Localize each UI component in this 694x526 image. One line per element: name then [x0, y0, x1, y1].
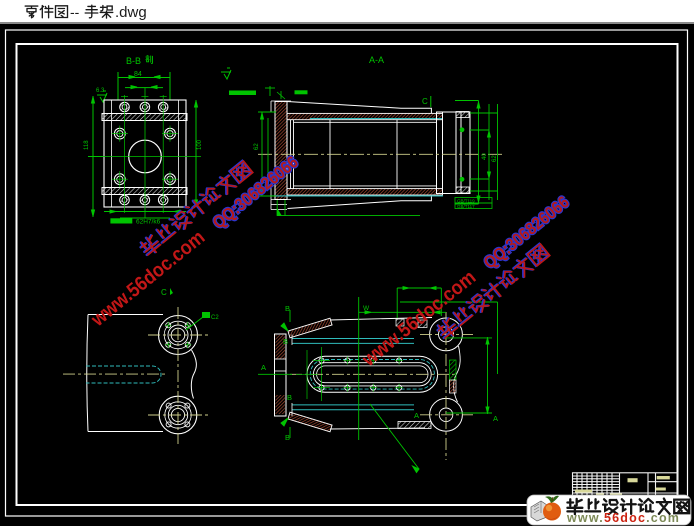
svg-text:B: B: [283, 337, 288, 346]
svg-text:62H7/k6: 62H7/k6: [136, 219, 161, 226]
svg-text:B: B: [285, 433, 290, 442]
svg-text:C: C: [422, 97, 428, 106]
svg-text:A: A: [493, 414, 498, 423]
svg-text:B: B: [285, 304, 290, 313]
svg-text:6.3: 6.3: [96, 88, 105, 94]
svg-text:84: 84: [134, 71, 142, 78]
svg-text:A: A: [261, 363, 266, 372]
svg-text:B: B: [287, 393, 292, 402]
svg-text:118: 118: [84, 140, 90, 150]
svg-text:C2: C2: [211, 315, 219, 321]
svg-text:.dwg: .dwg: [115, 4, 147, 21]
svg-text:W: W: [363, 305, 370, 312]
svg-text:C: C: [161, 288, 167, 297]
svg-text:40: 40: [482, 153, 488, 160]
svg-text:A: A: [414, 411, 419, 420]
svg-text:62: 62: [254, 143, 260, 150]
svg-text:GB/T119: GB/T119: [457, 198, 475, 203]
svg-text:www.56doc.com: www.56doc.com: [566, 511, 680, 525]
svg-text:GB/T117: GB/T117: [457, 204, 475, 209]
svg-text:62: 62: [492, 155, 498, 162]
svg-text:B-B: B-B: [126, 56, 141, 66]
svg-text:100: 100: [197, 139, 203, 150]
svg-text:--: --: [70, 4, 80, 20]
svg-text:A-A: A-A: [369, 55, 384, 65]
